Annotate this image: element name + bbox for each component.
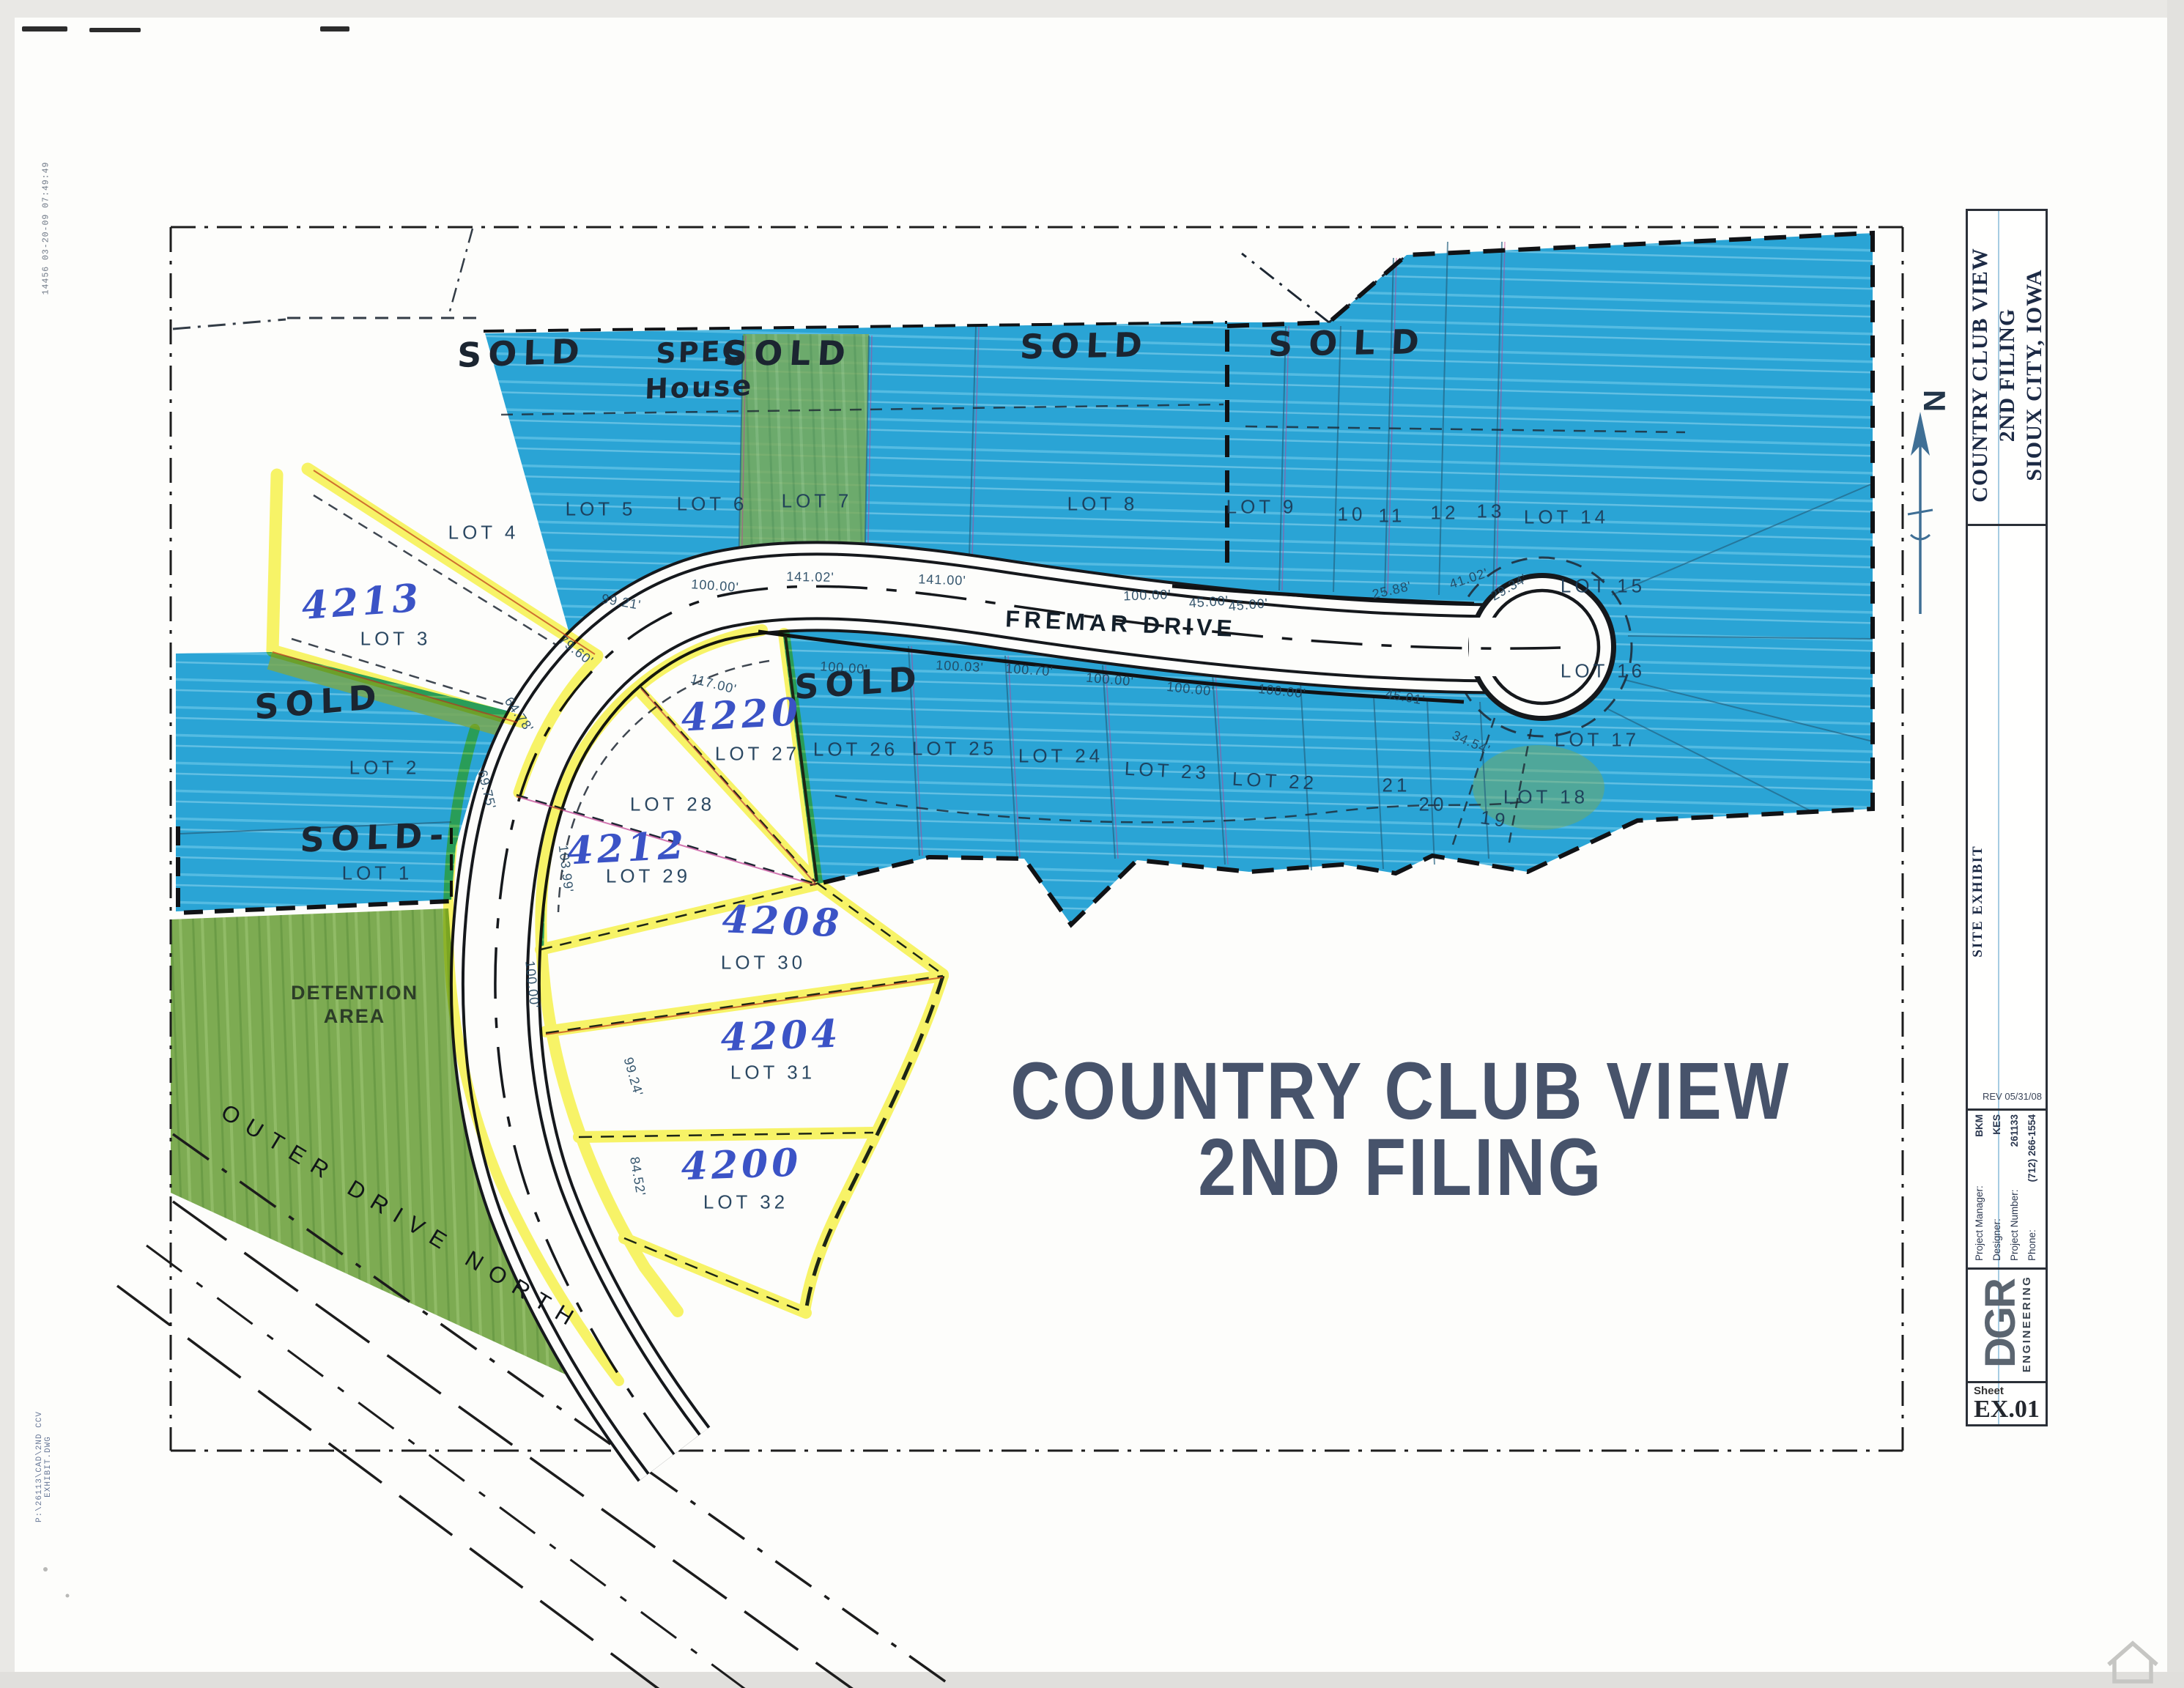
- scanned-plat-sheet: COUNTRY CLUB VIEW 2ND FILING SIOUX CITY,…: [0, 0, 2184, 1688]
- field-label: Project Number:: [2009, 1189, 2020, 1261]
- field-value: BKM: [1974, 1114, 1985, 1137]
- field-phone: Phone: (712) 266-1554: [2024, 1114, 2040, 1261]
- edge-plot-stamp-top: 14456 03-20-09 07:49:49: [42, 148, 51, 309]
- field-label: Designer:: [1991, 1218, 2002, 1261]
- edge-plot-stamp-bottom: P:\26113\CAD\2ND CCV EXHIBIT.DWG: [35, 1379, 53, 1555]
- house-watermark-icon: [2109, 1643, 2157, 1681]
- field-value: 261133: [2009, 1114, 2020, 1147]
- project-title: COUNTRY CLUB VIEW 2ND FILING SIOUX CITY,…: [1963, 229, 2051, 522]
- scan-smudges: [43, 1567, 70, 1598]
- title-block-divider: [1966, 1108, 2048, 1111]
- sheet-number: EX.01: [1966, 1396, 2048, 1424]
- title-block-divider: [1966, 524, 2048, 526]
- field-value: (712) 266-1554: [2026, 1114, 2037, 1182]
- project-title-line: COUNTRY CLUB VIEW: [1966, 229, 1994, 522]
- project-title-line: 2ND FILING: [1994, 229, 2021, 522]
- firm-name-text: ENGINEERING: [2021, 1276, 2033, 1373]
- revision-note: REV 05/31/08: [1983, 1091, 2053, 1102]
- engineering-firm-logo: DGR ENGINEERING: [1969, 1269, 2045, 1379]
- field-value: KES: [1991, 1114, 2002, 1135]
- plat-map-drawing: [0, 0, 2184, 1688]
- north-arrow: [1908, 412, 1933, 614]
- firm-logo-text: DGR: [1981, 1280, 2021, 1368]
- field-label: Project Manager:: [1974, 1185, 1985, 1261]
- field-project-number: Project Number: 261133: [2006, 1114, 2022, 1261]
- field-label: Phone:: [2026, 1229, 2037, 1261]
- project-title-line: SIOUX CITY, IOWA: [2021, 229, 2048, 522]
- field-designer: Designer: KES: [1988, 1114, 2005, 1261]
- exhibit-type-label: SITE EXHIBIT: [1970, 806, 1989, 996]
- title-block-divider: [1966, 1381, 2048, 1383]
- field-project-manager: Project Manager: BKM: [1971, 1114, 1987, 1261]
